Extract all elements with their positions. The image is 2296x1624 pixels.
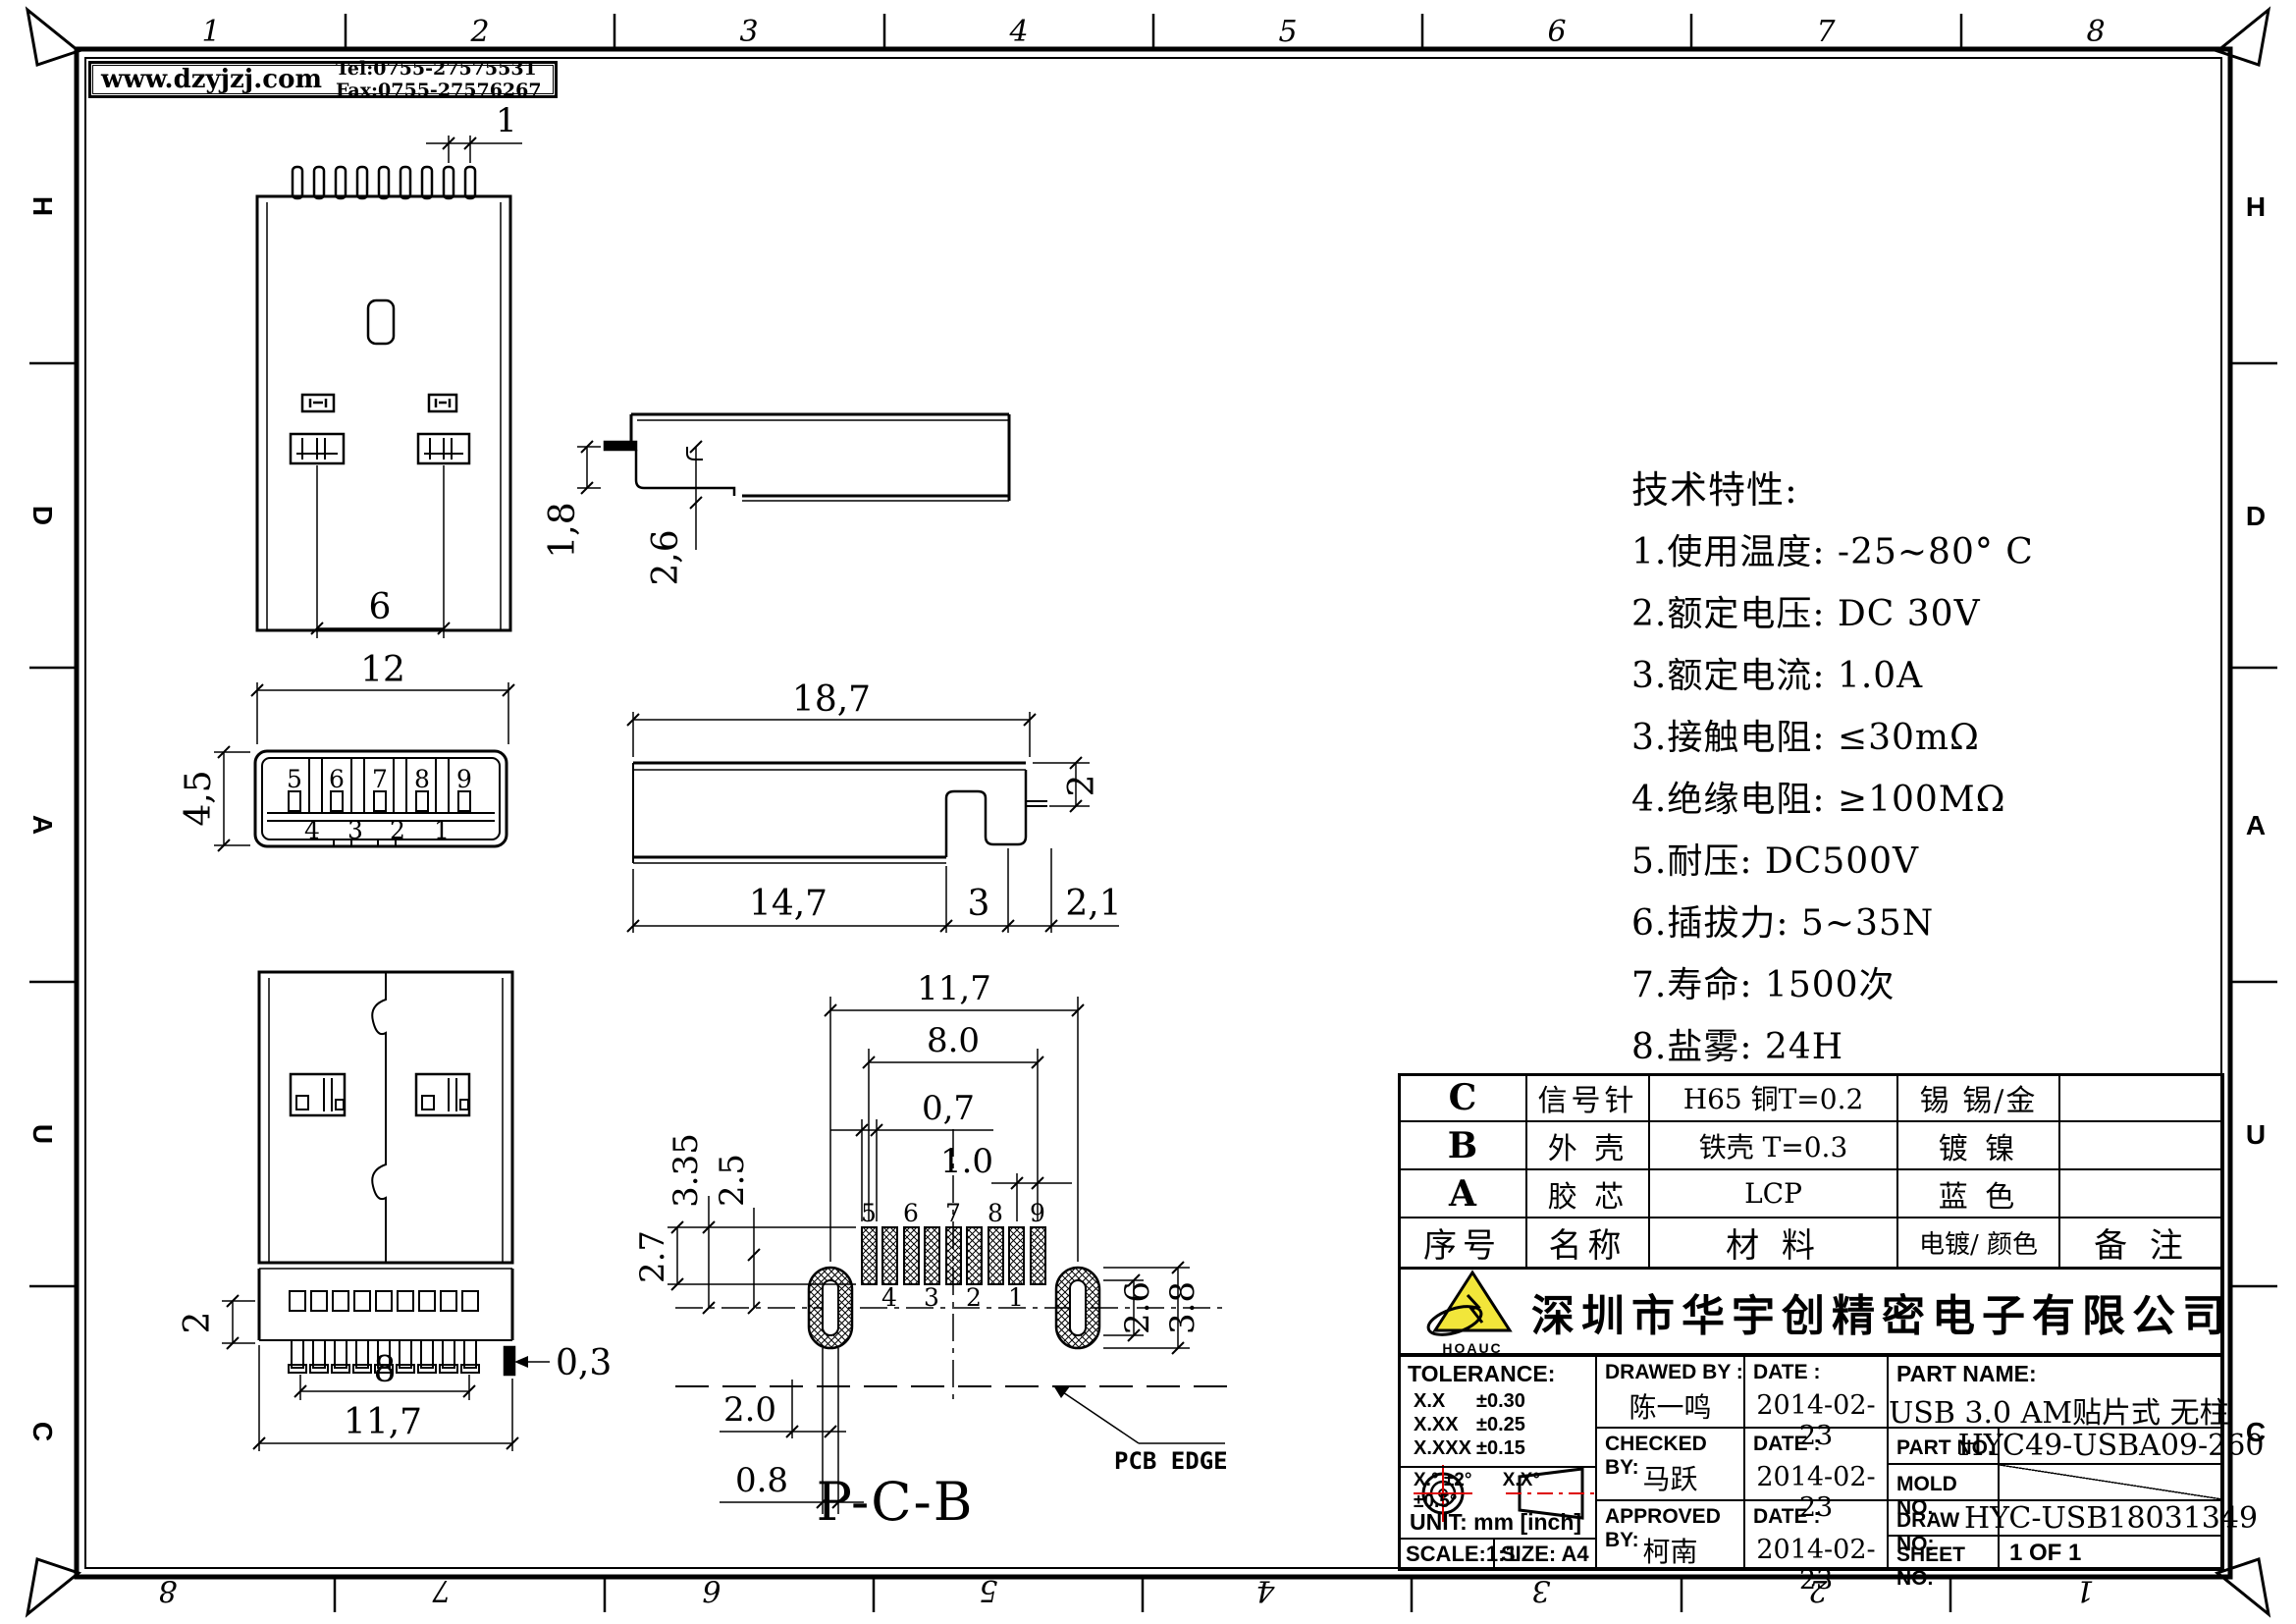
spec-item: 5.耐压: DC500V [1631,831,2260,893]
spec-item: 7.寿命: 1500次 [1631,954,2260,1016]
approved-date-cell: DATE : 2014-02-23 [1743,1499,1889,1571]
material-row-name: 信号针 [1525,1073,1650,1122]
material-header-material: 材 料 [1648,1217,1898,1269]
material-row-note [2058,1073,2224,1122]
spec-item: 8.盐雾: 24H [1631,1016,2260,1078]
title-block: C 信号针 H65 铜T=0.2 锡 锡/金 B 外 壳 铁壳 T=0.3 镀 … [1398,1073,2224,1571]
company-row: HOAUC 深圳市华宇创精密电子有限公司 [1398,1267,2224,1355]
contact-numbers: Tel:0755-27575531 Fax:0755-27576267 [336,58,555,101]
material-header-name: 名称 [1525,1217,1650,1269]
tolerance-title: TOLERANCE: [1400,1357,1595,1387]
part-name-cell: PART NAME: USB 3.0 AM贴片式 无柱 [1887,1355,2224,1429]
unit-label: UNIT: mm [inch] [1410,1509,1581,1536]
mold-no-value [1998,1463,2224,1501]
material-row-plating: 锡 锡/金 [1896,1073,2060,1122]
part-no-value: HYC49-USBA09-260 [1998,1427,2224,1465]
spec-item: 3.额定电流: 1.0A [1631,645,2260,707]
approved-date: 2014-02-23 [1745,1535,1887,1596]
material-row-seq: B [1398,1120,1527,1170]
draw-no-value: HYC-USB18031349 [1998,1499,2224,1537]
technical-specs: 技术特性: 1.使用温度: -25~80° C 2.额定电压: DC 30V 3… [1631,460,2260,1078]
material-row-plating: 镀 镍 [1896,1120,2060,1170]
website-url: www.dzyjzj.com [101,65,322,94]
material-row-material: 铁壳 T=0.3 [1648,1120,1898,1170]
tolerance-box: TOLERANCE: X.X±0.30 X.XX±0.25 X.XXX±0.15… [1398,1355,1597,1468]
material-row-material: H65 铜T=0.2 [1648,1073,1898,1122]
material-header-seq: 序号 [1398,1217,1527,1269]
drawed-by-cell: DRAWED BY : 陈一鸣 [1595,1355,1745,1429]
sheet-no-value: 1 OF 1 [1998,1535,2224,1571]
spec-item: 4.绝缘电阻: ≥100MΩ [1631,769,2260,831]
sheet-no-label-cell: SHEET NO. [1887,1535,2000,1571]
checked-by-name: 马跃 [1597,1458,1743,1497]
material-row-name: 外 壳 [1525,1120,1650,1170]
scale-cell: SCALE:1:1 [1398,1538,1495,1571]
material-header-plating: 电镀/ 颜色 [1896,1217,2060,1269]
projection-unit-box: UNIT: mm [inch] [1398,1466,1597,1540]
specs-title: 技术特性: [1631,460,2260,521]
part-name-value: USB 3.0 AM贴片式 无柱 [1889,1388,2209,1432]
approved-by-cell: APPROVED BY: 柯南 [1595,1499,1745,1571]
spec-item: 6.插拔力: 5~35N [1631,893,2260,954]
material-row-plating: 蓝 色 [1896,1168,2060,1218]
drawed-by-name: 陈一鸣 [1597,1386,1743,1426]
mold-no-label-cell: MOLD NO. [1887,1463,2000,1501]
size-cell: SIZE: A4 [1493,1538,1597,1571]
material-row-note [2058,1168,2224,1218]
checked-date-cell: DATE : 2014-02-23 [1743,1427,1889,1501]
company-name: 深圳市华宇创精密电子有限公司 [1531,1280,2232,1343]
spec-item: 3.接触电阻: ≤30mΩ [1631,707,2260,769]
material-row-name: 胶 芯 [1525,1168,1650,1218]
drawing-sheet: 1 2 3 4 5 6 7 8 8 7 6 5 4 3 2 1 H D A U … [0,0,2296,1624]
spec-item: 1.使用温度: -25~80° C [1631,521,2260,583]
company-logo: HOAUC [1414,1270,1531,1354]
annotation-layer: www.dzyjzj.com Tel:0755-27575531 Fax:075… [0,0,2296,1624]
approved-by-name: 柯南 [1597,1531,1743,1570]
checked-by-cell: CHECKED BY: 马跃 [1595,1427,1745,1501]
material-row-seq: C [1398,1073,1527,1122]
material-row-note [2058,1120,2224,1170]
material-row-material: LCP [1648,1168,1898,1218]
drawed-date-cell: DATE : 2014-02-23 [1743,1355,1889,1429]
material-row-seq: A [1398,1168,1527,1218]
header-contact-box: www.dzyjzj.com Tel:0755-27575531 Fax:075… [88,61,558,98]
material-header-note: 备 注 [2058,1217,2224,1269]
spec-item: 2.额定电压: DC 30V [1631,583,2260,645]
logo-text: HOAUC [1414,1340,1531,1356]
